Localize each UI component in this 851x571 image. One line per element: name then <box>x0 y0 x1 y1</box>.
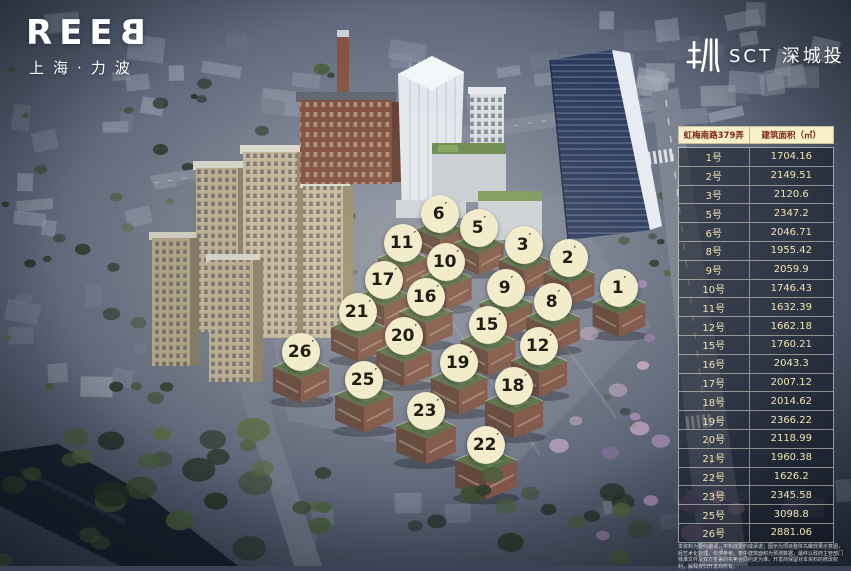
building-marker-number: 8 <box>546 292 558 312</box>
building-marker-number: 3 <box>517 235 529 255</box>
building-marker-number: 5 <box>472 218 484 238</box>
table-header-address: 虹梅南路379弄 <box>679 127 749 143</box>
table-cell-area: 2881.06 <box>749 524 833 542</box>
disclaimer-text: 本资料为要约邀请，不构成要约或承诺；图示为项目整体鸟瞰效果示意图，经艺术化处理，… <box>678 544 845 571</box>
building-marker[interactable]: 3′ <box>505 226 543 264</box>
sct-logo-label: SCT 深城投 <box>729 42 845 68</box>
table-cell-area: 1746.43 <box>749 280 833 298</box>
building-marker-number: 17 <box>371 270 395 290</box>
building-marker-prime: ′ <box>375 368 378 378</box>
table-cell-building-no: 5号 <box>679 204 749 222</box>
building-marker-prime: ′ <box>457 250 460 260</box>
table-cell-building-no: 10号 <box>679 280 749 298</box>
building-marker-prime: ′ <box>369 300 372 310</box>
building-marker-number: 25 <box>351 370 375 390</box>
building-marker[interactable]: 9′ <box>487 269 525 307</box>
building-marker[interactable]: 18′ <box>495 367 533 405</box>
building-marker-number: 18 <box>501 376 525 396</box>
table-cell-building-no: 20号 <box>679 430 749 448</box>
building-marker[interactable]: 20′ <box>385 317 423 355</box>
building-marker-number: 26 <box>288 342 312 362</box>
table-row: 3号 2120.6 <box>679 186 833 205</box>
table-cell-building-no: 25号 <box>679 505 749 523</box>
building-marker-prime: ′ <box>484 216 487 226</box>
table-cell-area: 2366.22 <box>749 411 833 429</box>
building-marker-prime: ′ <box>558 290 561 300</box>
building-marker-prime: ′ <box>525 374 528 384</box>
table-cell-area: 2118.99 <box>749 430 833 448</box>
building-marker-number: 16 <box>413 287 437 307</box>
area-table-header: 虹梅南路379弄 建筑面积（㎡） <box>678 126 834 144</box>
building-marker[interactable]: 5′ <box>460 209 498 247</box>
table-cell-area: 2345.58 <box>749 486 833 504</box>
table-row: 19号 2366.22 <box>679 411 833 430</box>
building-marker[interactable]: 11′ <box>384 224 422 262</box>
reeb-logo: REEB 上海·力波 <box>26 16 153 78</box>
table-cell-building-no: 15号 <box>679 336 749 354</box>
table-cell-building-no: 18号 <box>679 392 749 410</box>
building-marker-number: 2 <box>562 248 574 268</box>
table-cell-area: 3098.8 <box>749 505 833 523</box>
building-marker[interactable]: 8′ <box>534 283 572 321</box>
building-marker-number: 23 <box>413 401 437 421</box>
building-marker[interactable]: 22′ <box>467 426 505 464</box>
table-row: 23号 2345.58 <box>679 486 833 505</box>
table-row: 21号 1960.38 <box>679 449 833 468</box>
table-cell-area: 1632.39 <box>749 298 833 316</box>
building-marker[interactable]: 26′ <box>282 333 320 371</box>
table-row: 15号 1760.21 <box>679 336 833 355</box>
building-marker-prime: ′ <box>470 351 473 361</box>
table-cell-area: 2043.3 <box>749 355 833 373</box>
building-marker-prime: ′ <box>497 433 500 443</box>
table-cell-area: 1960.38 <box>749 449 833 467</box>
table-cell-building-no: 26号 <box>679 524 749 542</box>
building-marker[interactable]: 2′ <box>550 239 588 277</box>
building-marker-number: 10 <box>433 252 457 272</box>
table-row: 1号 1704.16 <box>679 148 833 167</box>
table-row: 17号 2007.12 <box>679 374 833 393</box>
table-row: 26号 2881.06 <box>679 524 833 543</box>
table-row: 11号 1632.39 <box>679 298 833 317</box>
table-row: 18号 2014.62 <box>679 392 833 411</box>
table-row: 5号 2347.2 <box>679 204 833 223</box>
table-cell-building-no: 21号 <box>679 449 749 467</box>
building-marker-prime: ′ <box>437 285 440 295</box>
building-marker-prime: ′ <box>529 233 532 243</box>
table-cell-area: 1662.18 <box>749 317 833 335</box>
table-row: 8号 1955.42 <box>679 242 833 261</box>
table-row: 2号 2149.51 <box>679 167 833 186</box>
table-cell-building-no: 12号 <box>679 317 749 335</box>
table-row: 22号 1626.2 <box>679 468 833 487</box>
table-row: 16号 2043.3 <box>679 355 833 374</box>
building-marker[interactable]: 21′ <box>339 293 377 331</box>
table-cell-building-no: 23号 <box>679 486 749 504</box>
building-marker-number: 20 <box>391 326 415 346</box>
table-cell-building-no: 9号 <box>679 261 749 279</box>
shencheng-tou-icon <box>686 30 720 80</box>
sct-logo: SCT 深城投 <box>686 30 845 80</box>
table-cell-area: 2120.6 <box>749 186 833 204</box>
building-marker-prime: ′ <box>624 276 627 286</box>
building-marker-prime: ′ <box>550 334 553 344</box>
table-cell-area: 1760.21 <box>749 336 833 354</box>
building-marker[interactable]: 17′ <box>365 261 403 299</box>
building-marker-prime: ′ <box>395 268 398 278</box>
table-cell-building-no: 17号 <box>679 374 749 392</box>
building-marker-prime: ′ <box>437 399 440 409</box>
table-cell-building-no: 6号 <box>679 223 749 241</box>
area-table-body: 1号 1704.16 2号 2149.51 3号 2120.6 5号 2347.… <box>678 147 834 543</box>
table-cell-area: 1626.2 <box>749 468 833 486</box>
table-cell-building-no: 11号 <box>679 298 749 316</box>
building-marker-number: 1 <box>612 278 624 298</box>
building-marker-number: 15 <box>475 315 499 335</box>
building-marker[interactable]: 16′ <box>407 278 445 316</box>
building-marker-number: 11 <box>390 233 414 253</box>
building-marker-number: 9 <box>499 278 511 298</box>
table-cell-building-no: 16号 <box>679 355 749 373</box>
building-marker-prime: ′ <box>414 231 417 241</box>
table-cell-building-no: 19号 <box>679 411 749 429</box>
table-row: 20号 2118.99 <box>679 430 833 449</box>
building-marker-number: 6 <box>433 204 445 224</box>
building-marker[interactable]: 1′ <box>600 269 638 307</box>
building-marker-prime: ′ <box>511 276 514 286</box>
table-cell-building-no: 1号 <box>679 148 749 166</box>
table-cell-area: 2046.71 <box>749 223 833 241</box>
reeb-subtitle: 上海·力波 <box>26 57 153 78</box>
building-marker-prime: ′ <box>415 324 418 334</box>
building-marker[interactable]: 10′ <box>427 243 465 281</box>
building-marker-number: 12 <box>526 336 550 356</box>
building-marker-number: 22 <box>473 435 497 455</box>
building-marker[interactable]: 23′ <box>407 392 445 430</box>
table-cell-area: 1704.16 <box>749 148 833 166</box>
building-marker[interactable]: 19′ <box>440 344 478 382</box>
table-cell-area: 2059.9 <box>749 261 833 279</box>
table-cell-area: 1955.42 <box>749 242 833 260</box>
building-marker-prime: ′ <box>445 202 448 212</box>
table-cell-area: 2014.62 <box>749 392 833 410</box>
table-row: 6号 2046.71 <box>679 223 833 242</box>
table-header-area: 建筑面积（㎡） <box>749 127 833 143</box>
table-row: 12号 1662.18 <box>679 317 833 336</box>
table-cell-building-no: 22号 <box>679 468 749 486</box>
table-cell-building-no: 8号 <box>679 242 749 260</box>
building-marker-prime: ′ <box>574 246 577 256</box>
table-row: 10号 1746.43 <box>679 280 833 299</box>
building-marker[interactable]: 12′ <box>520 327 558 365</box>
table-cell-area: 2347.2 <box>749 204 833 222</box>
table-cell-building-no: 3号 <box>679 186 749 204</box>
building-marker-number: 21 <box>345 302 369 322</box>
reeb-wordmark: REEB <box>26 16 153 50</box>
building-marker[interactable]: 15′ <box>469 306 507 344</box>
building-marker-number: 19 <box>446 353 470 373</box>
building-marker[interactable]: 25′ <box>345 361 383 399</box>
table-row: 9号 2059.9 <box>679 261 833 280</box>
building-marker-prime: ′ <box>312 340 315 350</box>
building-marker[interactable]: 6′ <box>421 195 459 233</box>
building-marker-prime: ′ <box>499 313 502 323</box>
table-row: 25号 3098.8 <box>679 505 833 524</box>
table-cell-area: 2007.12 <box>749 374 833 392</box>
table-cell-building-no: 2号 <box>679 167 749 185</box>
table-cell-area: 2149.51 <box>749 167 833 185</box>
area-table: 虹梅南路379弄 建筑面积（㎡） 1号 1704.16 2号 2149.51 3… <box>678 126 834 543</box>
